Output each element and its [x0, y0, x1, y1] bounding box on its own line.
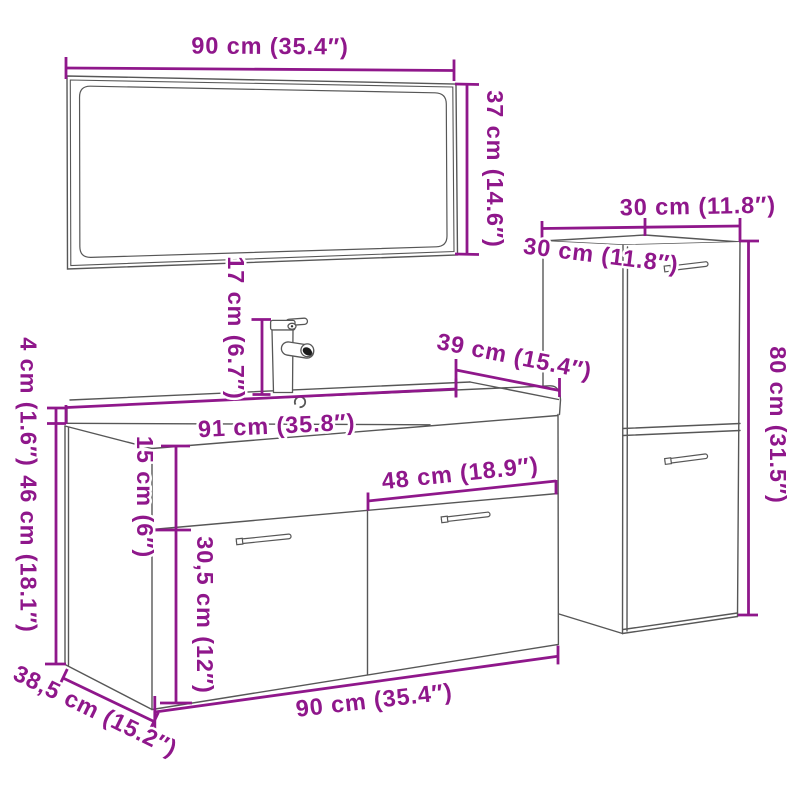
svg-text:4 cm (1.6″): 4 cm (1.6″): [16, 337, 42, 467]
svg-text:30 cm (11.8″): 30 cm (11.8″): [620, 192, 777, 221]
svg-text:17 cm (6.7″): 17 cm (6.7″): [223, 256, 249, 400]
svg-text:15 cm (6″): 15 cm (6″): [132, 436, 158, 558]
svg-text:30,5 cm (12″): 30,5 cm (12″): [192, 536, 218, 694]
svg-text:37 cm (14.6″): 37 cm (14.6″): [482, 90, 508, 248]
svg-text:46 cm (18.1″): 46 cm (18.1″): [16, 475, 42, 633]
svg-text:90 cm (35.4″): 90 cm (35.4″): [191, 32, 349, 59]
svg-text:80 cm (31.5″): 80 cm (31.5″): [765, 346, 791, 504]
